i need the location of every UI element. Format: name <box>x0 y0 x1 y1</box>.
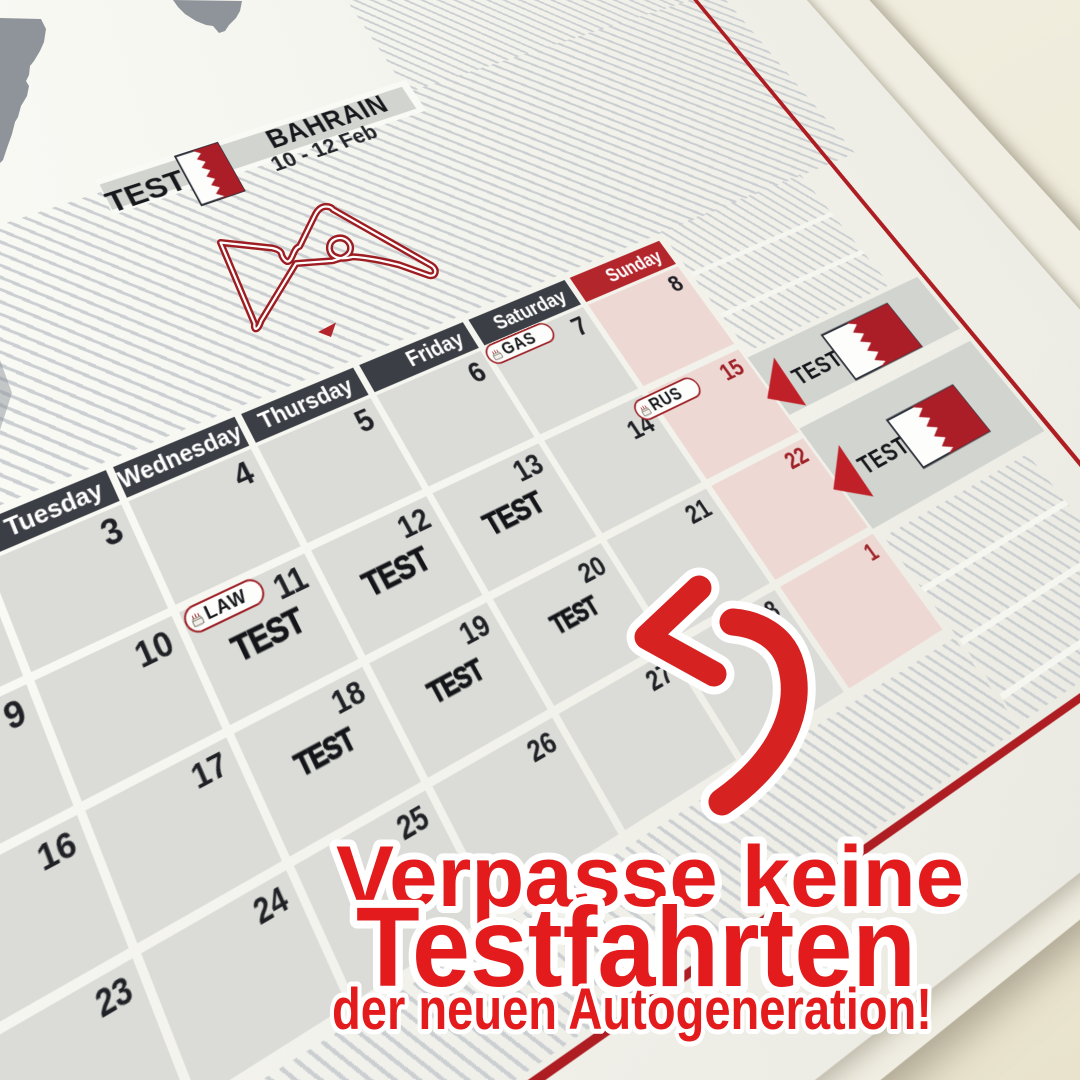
svg-text:der neuen Autogeneration!: der neuen Autogeneration! <box>332 977 932 1042</box>
